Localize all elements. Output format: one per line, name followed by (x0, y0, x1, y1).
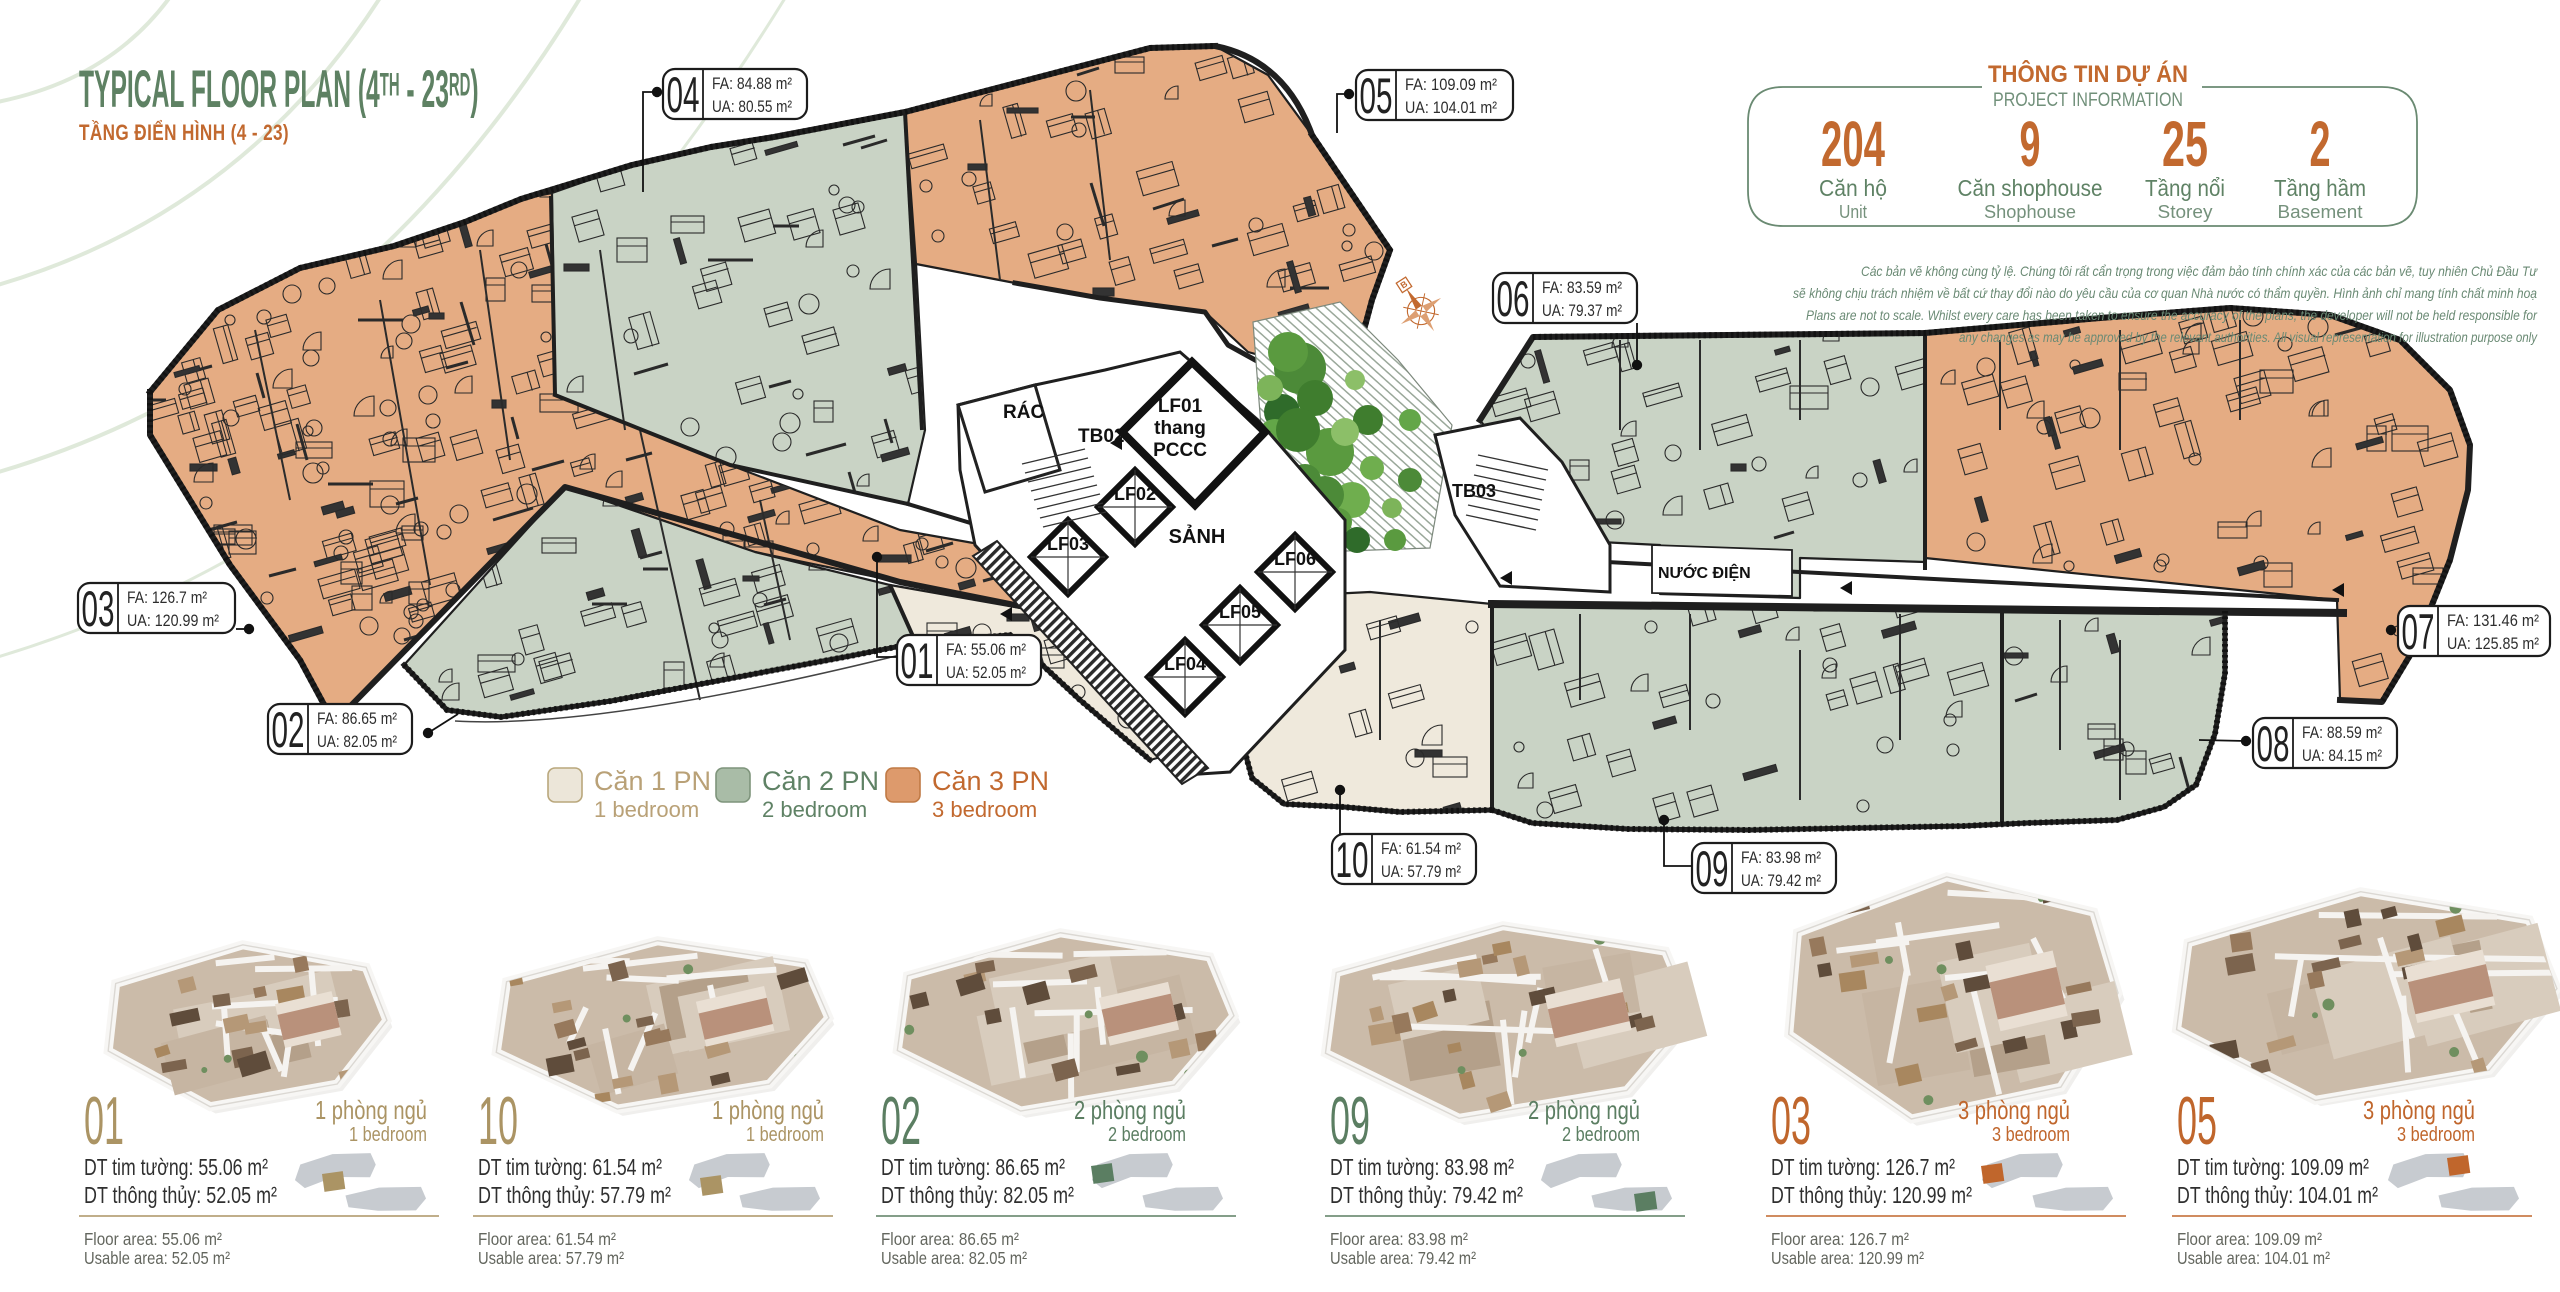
svg-text:Căn hộ: Căn hộ (1819, 175, 1887, 201)
svg-text:Căn 1 PN: Căn 1 PN (594, 766, 711, 796)
svg-text:LF05: LF05 (1219, 602, 1261, 622)
svg-text:SẢNH: SẢNH (1169, 525, 1226, 548)
svg-text:01: 01 (84, 1083, 124, 1159)
svg-text:Usable area: 120.99 m²: Usable area: 120.99 m² (1771, 1248, 1924, 1268)
svg-text:3 bedroom: 3 bedroom (932, 797, 1037, 822)
svg-text:Usable area: 52.05 m²: Usable area: 52.05 m² (84, 1248, 230, 1268)
svg-text:THÔNG TIN DỰ ÁN: THÔNG TIN DỰ ÁN (1988, 60, 2188, 88)
svg-text:3 bedroom: 3 bedroom (2397, 1124, 2475, 1146)
svg-text:2 bedroom: 2 bedroom (762, 797, 867, 822)
svg-text:05: 05 (1360, 68, 1393, 124)
svg-text:DT tim tường: 55.06 m²: DT tim tường: 55.06 m² (84, 1154, 268, 1180)
svg-text:FA: 83.59 m²: FA: 83.59 m² (1542, 278, 1622, 297)
svg-text:any changes as may be approved: any changes as may be approved by the re… (1959, 329, 2538, 345)
svg-text:Floor area: 86.65 m²: Floor area: 86.65 m² (881, 1229, 1019, 1249)
svg-text:204: 204 (1821, 108, 1885, 180)
svg-text:02: 02 (881, 1083, 921, 1159)
svg-text:LF01: LF01 (1158, 396, 1203, 417)
svg-text:3 bedroom: 3 bedroom (1992, 1124, 2070, 1146)
svg-text:UA: 104.01 m²: UA: 104.01 m² (1405, 98, 1497, 117)
svg-text:UA: 79.42 m²: UA: 79.42 m² (1741, 871, 1821, 890)
svg-text:Usable area: 82.05 m²: Usable area: 82.05 m² (881, 1248, 1027, 1268)
svg-text:1 bedroom: 1 bedroom (594, 797, 699, 822)
svg-text:1 phòng ngủ: 1 phòng ngủ (315, 1095, 427, 1125)
svg-text:Usable area: 79.42 m²: Usable area: 79.42 m² (1330, 1248, 1476, 1268)
svg-text:TB03: TB03 (1452, 481, 1496, 501)
svg-text:NƯỚC ĐIỆN: NƯỚC ĐIỆN (1658, 563, 1751, 582)
svg-text:Plans are not to scale. Whilst: Plans are not to scale. Whilst every car… (1806, 307, 2538, 323)
svg-text:FA: 61.54 m²: FA: 61.54 m² (1381, 839, 1461, 858)
svg-text:Căn 3 PN: Căn 3 PN (932, 766, 1049, 796)
svg-text:Floor area: 109.09 m²: Floor area: 109.09 m² (2177, 1229, 2322, 1249)
svg-text:LF06: LF06 (1274, 549, 1316, 569)
svg-text:UA: 120.99 m²: UA: 120.99 m² (127, 611, 219, 630)
svg-text:PCCC: PCCC (1153, 440, 1207, 461)
svg-text:Floor area: 83.98 m²: Floor area: 83.98 m² (1330, 1229, 1468, 1249)
svg-text:DT thông thủy: 79.42 m²: DT thông thủy: 79.42 m² (1330, 1182, 1523, 1208)
svg-text:Các bản vẽ không cùng tỷ lệ. C: Các bản vẽ không cùng tỷ lệ. Chúng tôi r… (1861, 263, 2538, 279)
svg-text:03: 03 (1771, 1083, 1811, 1159)
svg-text:FA: 55.06 m²: FA: 55.06 m² (946, 640, 1026, 659)
svg-text:2 phòng ngủ: 2 phòng ngủ (1528, 1095, 1640, 1125)
svg-text:3 phòng ngủ: 3 phòng ngủ (1958, 1095, 2070, 1125)
svg-text:LF03: LF03 (1047, 534, 1089, 554)
svg-text:05: 05 (2177, 1083, 2217, 1159)
svg-text:UA: 52.05 m²: UA: 52.05 m² (946, 663, 1026, 682)
svg-text:Floor area: 55.06 m²: Floor area: 55.06 m² (84, 1229, 222, 1249)
svg-text:2 phòng ngủ: 2 phòng ngủ (1074, 1095, 1186, 1125)
svg-text:10: 10 (478, 1083, 518, 1159)
svg-text:UA: 82.05 m²: UA: 82.05 m² (317, 732, 397, 751)
svg-text:DT thông thủy: 57.79 m²: DT thông thủy: 57.79 m² (478, 1182, 671, 1208)
svg-text:Căn shophouse: Căn shophouse (1958, 175, 2103, 201)
svg-text:UA: 57.79 m²: UA: 57.79 m² (1381, 862, 1461, 881)
svg-text:DT tim tường: 109.09 m²: DT tim tường: 109.09 m² (2177, 1154, 2369, 1180)
svg-text:DT tim tường: 61.54 m²: DT tim tường: 61.54 m² (478, 1154, 662, 1180)
svg-text:DT tim tường: 86.65 m²: DT tim tường: 86.65 m² (881, 1154, 1065, 1180)
svg-text:FA: 84.88 m²: FA: 84.88 m² (712, 74, 792, 93)
svg-text:Usable area: 57.79 m²: Usable area: 57.79 m² (478, 1248, 624, 1268)
svg-text:DT thông thủy: 120.99 m²: DT thông thủy: 120.99 m² (1771, 1182, 1972, 1208)
svg-text:DT tim tường: 126.7 m²: DT tim tường: 126.7 m² (1771, 1154, 1955, 1180)
svg-text:03: 03 (82, 581, 115, 637)
svg-text:DT thông thủy: 82.05 m²: DT thông thủy: 82.05 m² (881, 1182, 1074, 1208)
svg-text:06: 06 (1497, 271, 1530, 327)
svg-text:07: 07 (2402, 604, 2435, 660)
svg-text:DT tim tường: 83.98 m²: DT tim tường: 83.98 m² (1330, 1154, 1514, 1180)
svg-text:Storey: Storey (2158, 202, 2213, 222)
svg-text:Căn 2 PN: Căn 2 PN (762, 766, 879, 796)
svg-text:UA: 80.55 m²: UA: 80.55 m² (712, 97, 792, 116)
svg-text:Tầng hầm: Tầng hầm (2274, 175, 2366, 201)
svg-text:DT thông thủy: 52.05 m²: DT thông thủy: 52.05 m² (84, 1182, 277, 1208)
svg-text:08: 08 (2257, 716, 2290, 772)
svg-text:Usable area: 104.01 m²: Usable area: 104.01 m² (2177, 1248, 2330, 1268)
svg-text:FA: 109.09 m²: FA: 109.09 m² (1405, 75, 1497, 94)
svg-text:09: 09 (1696, 841, 1729, 897)
svg-text:thang: thang (1154, 418, 1206, 439)
svg-text:LF04: LF04 (1164, 654, 1206, 674)
svg-text:Unit: Unit (1839, 202, 1867, 222)
svg-text:FA: 126.7 m²: FA: 126.7 m² (127, 588, 207, 607)
svg-text:1 bedroom: 1 bedroom (746, 1124, 824, 1146)
svg-text:TYPICAL FLOOR PLAN (4TH - 23RD: TYPICAL FLOOR PLAN (4TH - 23RD) (79, 60, 479, 119)
svg-text:DT thông thủy: 104.01 m²: DT thông thủy: 104.01 m² (2177, 1182, 2378, 1208)
svg-text:2 bedroom: 2 bedroom (1108, 1124, 1186, 1146)
svg-text:02: 02 (272, 702, 305, 758)
svg-text:25: 25 (2162, 108, 2208, 180)
svg-text:1 bedroom: 1 bedroom (349, 1124, 427, 1146)
svg-text:1 phòng ngủ: 1 phòng ngủ (712, 1095, 824, 1125)
svg-text:Shophouse: Shophouse (1984, 202, 2076, 222)
svg-text:09: 09 (1330, 1083, 1370, 1159)
svg-text:FA: 131.46 m²: FA: 131.46 m² (2447, 611, 2539, 630)
svg-text:FA: 86.65 m²: FA: 86.65 m² (317, 709, 397, 728)
svg-text:LF02: LF02 (1114, 484, 1156, 504)
svg-text:TẦNG ĐIỂN HÌNH (4 - 23): TẦNG ĐIỂN HÌNH (4 - 23) (79, 120, 289, 146)
svg-text:UA: 125.85 m²: UA: 125.85 m² (2447, 634, 2539, 653)
svg-text:Floor area: 126.7 m²: Floor area: 126.7 m² (1771, 1229, 1909, 1249)
svg-text:9: 9 (2020, 108, 2041, 180)
svg-text:04: 04 (667, 67, 700, 123)
svg-text:2 bedroom: 2 bedroom (1562, 1124, 1640, 1146)
svg-text:Tầng nổi: Tầng nổi (2145, 175, 2225, 201)
svg-text:FA: 88.59 m²: FA: 88.59 m² (2302, 723, 2382, 742)
svg-text:UA: 79.37 m²: UA: 79.37 m² (1542, 301, 1622, 320)
svg-text:3 phòng ngủ: 3 phòng ngủ (2363, 1095, 2475, 1125)
svg-text:10: 10 (1336, 832, 1369, 888)
svg-text:UA: 84.15 m²: UA: 84.15 m² (2302, 746, 2382, 765)
svg-text:FA: 83.98 m²: FA: 83.98 m² (1741, 848, 1821, 867)
svg-text:Basement: Basement (2278, 202, 2363, 222)
svg-text:sẽ không chịu trách nhiệm về b: sẽ không chịu trách nhiệm về bất cứ thay… (1793, 285, 2537, 301)
svg-text:2: 2 (2310, 108, 2331, 180)
svg-text:Floor area: 61.54 m²: Floor area: 61.54 m² (478, 1229, 616, 1249)
svg-text:RÁC: RÁC (1003, 401, 1044, 423)
svg-text:01: 01 (901, 633, 934, 689)
